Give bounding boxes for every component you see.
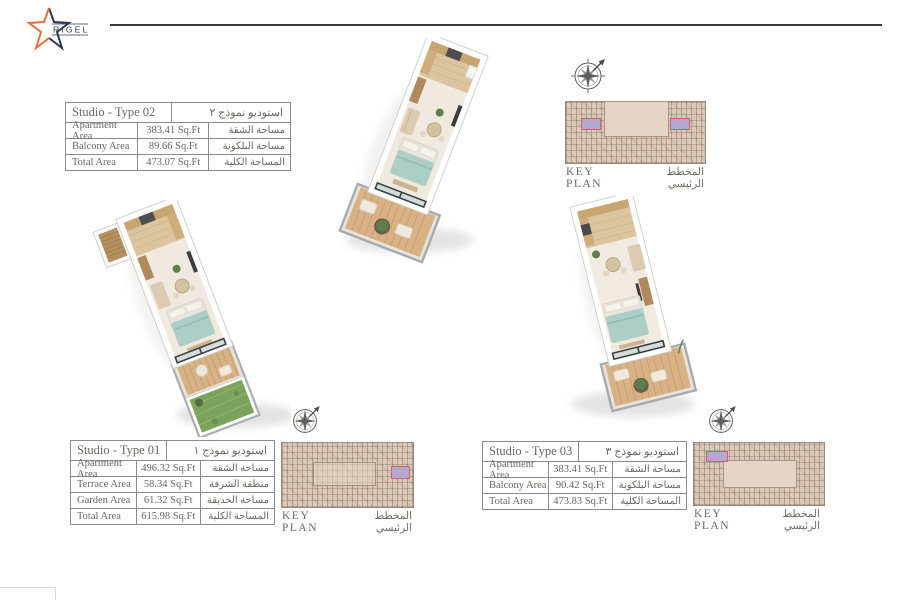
- keyplan-core: [313, 462, 375, 486]
- keyplan-courtyard: [723, 460, 798, 488]
- table-title-ar: استوديو نموذج ٣: [579, 442, 686, 461]
- table-row: Apartment Area 496.32 Sq.Ft مساحة الشقة: [71, 461, 274, 476]
- keyplan-label-en: KEY PLAN: [566, 166, 631, 190]
- area-table-type01: Studio - Type 01 استوديو نموذج ١ Apartme…: [70, 440, 275, 525]
- keyplan-labels: KEY PLAN المخطط الرئيسي: [566, 166, 704, 190]
- row-label-en: Balcony Area: [66, 139, 138, 154]
- keyplan-highlight: [391, 466, 410, 479]
- row-value: 90.42 Sq.Ft: [549, 478, 613, 493]
- row-value: 473.07 Sq.Ft: [138, 155, 209, 170]
- row-label-en: Apartment Area: [71, 461, 137, 476]
- keyplan-type01: KEY PLAN المخطط الرئيسي: [278, 400, 414, 526]
- row-value: 496.32 Sq.Ft: [137, 461, 201, 476]
- brand-wordmark: RIGEL: [53, 25, 90, 35]
- table-row: Apartment Area 383.41 Sq.Ft مساحة الشقة: [66, 123, 290, 138]
- keyplan-highlight: [670, 118, 690, 129]
- keyplan-labels: KEY PLAN المخطط الرئيسي: [694, 508, 820, 532]
- row-label-en: Apartment Area: [66, 123, 138, 138]
- row-label-ar: مساحة الحديقة: [201, 493, 274, 508]
- table-row: Total Area 473.83 Sq.Ft المساحة الكلية: [483, 493, 686, 509]
- keyplan-type02: KEY PLAN المخطط الرئيسي: [560, 54, 705, 186]
- table-row: Total Area 615.98 Sq.Ft المساحة الكلية: [71, 508, 274, 524]
- floorplan-3d-type01: [86, 200, 291, 437]
- row-value: 383.41 Sq.Ft: [138, 123, 209, 138]
- header-rule: [110, 24, 882, 26]
- keyplan-label-en: KEY PLAN: [694, 508, 753, 532]
- table-row: Balcony Area 90.42 Sq.Ft مساحة البلكونة: [483, 477, 686, 493]
- row-value: 473.83 Sq.Ft: [549, 494, 613, 509]
- row-label-ar: المساحة الكلية: [613, 494, 686, 509]
- keyplan-label-en: KEY PLAN: [282, 510, 343, 534]
- row-value: 383.41 Sq.Ft: [549, 462, 613, 477]
- row-label-ar: مساحة الشقة: [209, 123, 290, 138]
- row-label-en: Garden Area: [71, 493, 137, 508]
- row-label-en: Balcony Area: [483, 478, 549, 493]
- table-row: Garden Area 61.32 Sq.Ft مساحة الحديقة: [71, 492, 274, 508]
- row-label-ar: المساحة الكلية: [209, 155, 290, 170]
- table-title-ar: استوديو نموذج ١: [167, 441, 274, 460]
- row-label-ar: المساحة الكلية: [201, 509, 274, 524]
- keyplan-courtyard: [604, 101, 670, 137]
- row-label-ar: مساحة الشقة: [613, 462, 686, 477]
- row-label-en: Total Area: [66, 155, 138, 170]
- floorplan-3d-type03: [538, 196, 720, 426]
- keyplan-labels: KEY PLAN المخطط الرئيسي: [282, 510, 412, 534]
- rigel-logo: RIGEL: [26, 5, 110, 53]
- table-title-ar: استوديو نموذج ٢: [172, 103, 290, 122]
- keyplan-label-ar: المخطط الرئيسي: [753, 508, 820, 532]
- row-label-en: Terrace Area: [71, 477, 137, 492]
- keyplan-type03: KEY PLAN المخطط الرئيسي: [692, 400, 826, 526]
- compass-rose-icon: [566, 54, 610, 98]
- row-label-ar: منطقة الشرفة: [201, 477, 274, 492]
- table-row: Apartment Area 383.41 Sq.Ft مساحة الشقة: [483, 462, 686, 477]
- table-row: Terrace Area 58.34 Sq.Ft منطقة الشرفة: [71, 476, 274, 492]
- keyplan-label-ar: المخطط الرئيسي: [343, 510, 412, 534]
- row-label-ar: مساحة الشقة: [201, 461, 274, 476]
- keyplan-map: [693, 442, 825, 506]
- row-label-en: Apartment Area: [483, 462, 549, 477]
- area-table-type02: Studio - Type 02 استوديو نموذج ٢ Apartme…: [65, 102, 291, 171]
- row-value: 615.98 Sq.Ft: [137, 509, 201, 524]
- row-value: 61.32 Sq.Ft: [137, 493, 201, 508]
- compass-rose-icon: [702, 402, 740, 440]
- row-label-ar: مساحة البلكونة: [209, 139, 290, 154]
- area-table-type03: Studio - Type 03 استوديو نموذج ٣ Apartme…: [482, 441, 687, 510]
- brochure-page: RIGEL: [0, 0, 900, 600]
- keyplan-map: [565, 101, 706, 164]
- row-value: 89.66 Sq.Ft: [138, 139, 209, 154]
- floorplan-3d-type02: [330, 38, 510, 268]
- compass-rose-icon: [286, 402, 324, 440]
- keyplan-label-ar: المخطط الرئيسي: [631, 166, 704, 190]
- row-label-en: Total Area: [71, 509, 137, 524]
- keyplan-highlight: [706, 451, 729, 462]
- row-value: 58.34 Sq.Ft: [137, 477, 201, 492]
- row-label-ar: مساحة البلكونة: [613, 478, 686, 493]
- table-row: Total Area 473.07 Sq.Ft المساحة الكلية: [66, 154, 290, 170]
- table-row: Balcony Area 89.66 Sq.Ft مساحة البلكونة: [66, 138, 290, 154]
- page-corner-mark: [0, 587, 56, 600]
- row-label-en: Total Area: [483, 494, 549, 509]
- keyplan-highlight: [581, 118, 601, 129]
- keyplan-map: [281, 442, 414, 508]
